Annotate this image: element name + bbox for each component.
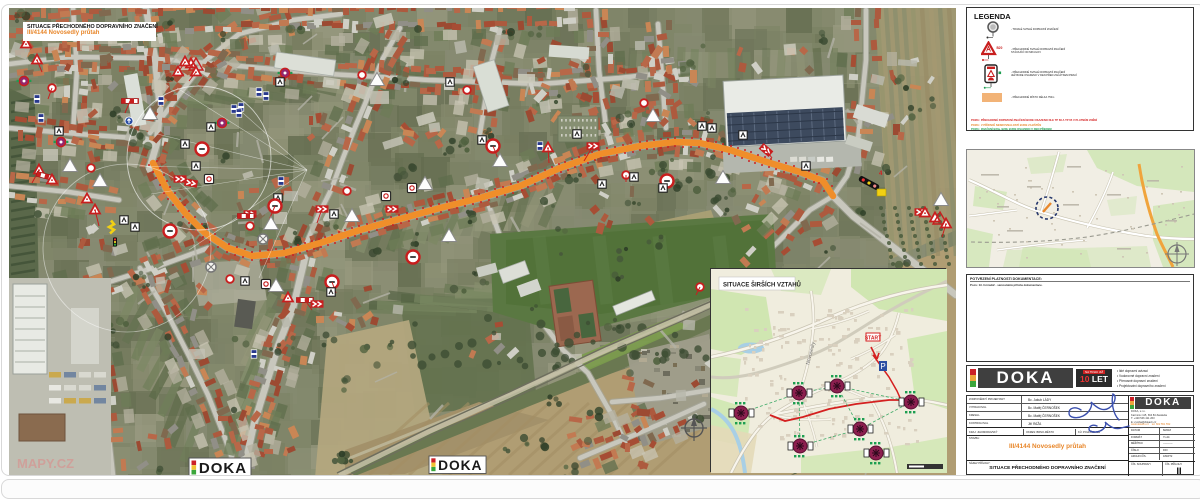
svg-text:P: P bbox=[880, 362, 885, 371]
svg-text:B20: B20 bbox=[997, 46, 1003, 50]
svg-text:DOKA: DOKA bbox=[438, 458, 482, 473]
svg-text:START: START bbox=[865, 336, 881, 342]
svg-text:SITUACE ŠIRŠÍCH VZTAHŮ: SITUACE ŠIRŠÍCH VZTAHŮ bbox=[723, 281, 801, 289]
svg-text:DOKA: DOKA bbox=[199, 460, 247, 475]
svg-text:MAPY.CZ: MAPY.CZ bbox=[17, 456, 74, 471]
